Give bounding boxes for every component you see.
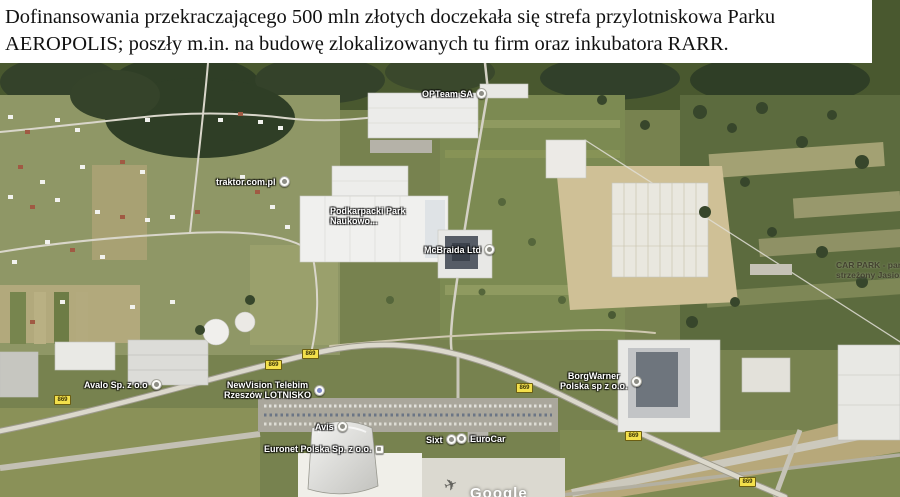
- poi-opteam[interactable]: OPTeam SA: [422, 88, 487, 99]
- silo-tank: [235, 312, 255, 332]
- place-marker-icon[interactable]: [279, 176, 290, 187]
- poi-avis[interactable]: Avis: [315, 421, 348, 432]
- screenshot: ✈: [0, 0, 900, 497]
- place-marker-icon[interactable]: [631, 376, 642, 387]
- road-869-badge: 869: [54, 395, 71, 405]
- caption-line-2: AEROPOLIS; poszły m.in. na budowę zlokal…: [5, 31, 872, 58]
- poi-label: Euronet Polska Sp. z o.o.: [264, 444, 372, 454]
- google-watermark: Google: [470, 485, 528, 497]
- parking-lot: [258, 398, 558, 432]
- poi-label: McBraida Ltd: [424, 245, 481, 255]
- poi-avalo[interactable]: Avalo Sp. z o.o: [84, 379, 162, 390]
- poi-science-park[interactable]: Podkarpacki Park Naukowo...: [330, 206, 406, 226]
- poi-label: strzeżony Jasionka: [836, 270, 900, 280]
- place-marker-icon[interactable]: [476, 88, 487, 99]
- opteam-warehouse: [368, 93, 478, 138]
- poi-eurocar[interactable]: EuroCar: [456, 433, 506, 444]
- poi-label: BorgWarner: [568, 371, 620, 381]
- terminal-building: [308, 422, 378, 494]
- place-marker-icon[interactable]: [314, 385, 325, 396]
- place-marker-icon[interactable]: [484, 244, 495, 255]
- poi-sixt[interactable]: Sixt: [426, 434, 457, 445]
- poi-label: EuroCar: [470, 434, 506, 444]
- place-marker-icon[interactable]: [375, 445, 384, 454]
- poi-newvision[interactable]: NewVision Telebim Rzeszów LOTNISKO: [224, 380, 325, 400]
- caption-line-1: Dofinansowania przekraczającego 500 mln …: [5, 4, 872, 31]
- poi-borgwarner[interactable]: BorgWarner Polska sp z o.o.: [560, 371, 642, 391]
- place-marker-icon[interactable]: [337, 421, 348, 432]
- poi-label: Polska sp z o.o.: [560, 381, 628, 391]
- poi-euronet[interactable]: Euronet Polska Sp. z o.o.: [264, 444, 384, 454]
- poi-label: OPTeam SA: [422, 89, 473, 99]
- poi-label: Avis: [315, 422, 334, 432]
- poi-label: Sixt: [426, 435, 443, 445]
- road-869-badge: 869: [625, 431, 642, 441]
- poi-car-park: CAR PARK - parking strzeżony Jasionka: [836, 260, 900, 280]
- construction-building: [612, 183, 708, 277]
- poi-label: Naukowo...: [330, 216, 406, 226]
- poi-label: NewVision Telebim: [227, 380, 308, 390]
- poi-label: Podkarpacki Park: [330, 206, 406, 216]
- poi-label: Avalo Sp. z o.o: [84, 380, 148, 390]
- poi-traktor[interactable]: traktor.com.pl: [216, 176, 290, 187]
- caption-box: Dofinansowania przekraczającego 500 mln …: [0, 0, 872, 63]
- silo-tank: [203, 319, 229, 345]
- place-marker-icon[interactable]: [151, 379, 162, 390]
- road-869-badge: 869: [302, 349, 319, 359]
- road-869-badge: 869: [516, 383, 533, 393]
- poi-label: CAR PARK - parking: [836, 260, 900, 270]
- road-869-badge: 869: [739, 477, 756, 487]
- place-marker-icon[interactable]: [456, 433, 467, 444]
- poi-label: Rzeszów LOTNISKO: [224, 390, 311, 400]
- poi-label: traktor.com.pl: [216, 177, 276, 187]
- poi-mcbraida[interactable]: McBraida Ltd: [424, 244, 495, 255]
- road-869-badge: 869: [265, 360, 282, 370]
- place-marker-icon[interactable]: [446, 434, 457, 445]
